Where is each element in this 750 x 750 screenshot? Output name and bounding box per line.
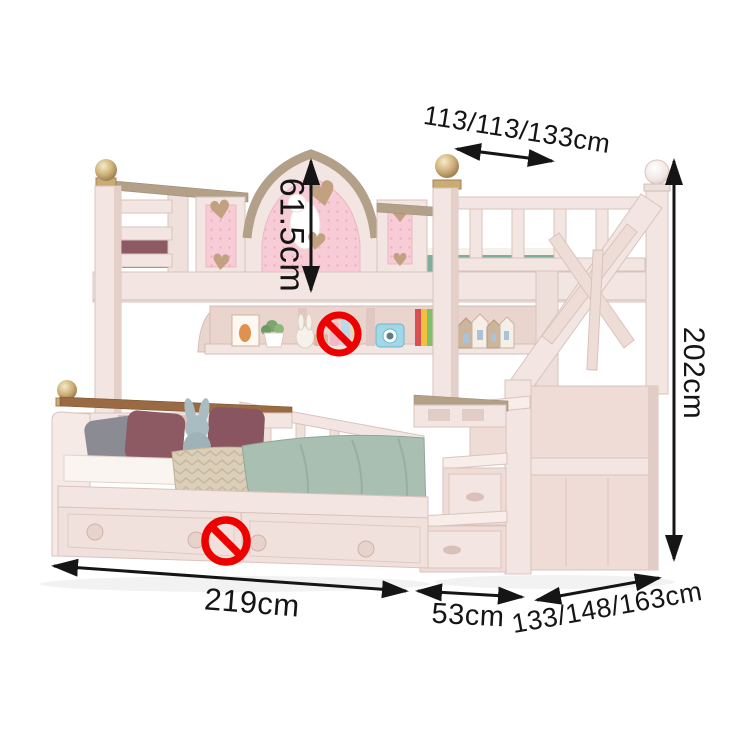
picture-frame [232, 315, 259, 346]
drawer-slot-handle [443, 546, 461, 555]
heart-panel-right: ♥ ♥ [377, 200, 433, 276]
upper-bunk: ♥ ♥ ♥ ♥ ♥ ♥ [56, 152, 648, 406]
dimension-label-headboard-height: 61.5cm [272, 178, 311, 293]
bunk-frame-band [93, 272, 648, 302]
floor-shadow [40, 575, 675, 592]
arrow-top-bunk-width [457, 149, 552, 161]
dimension-label-stair-depth: 53cm [431, 598, 506, 635]
drawer-round-handle [250, 535, 266, 551]
drawer-round-handle [87, 524, 103, 540]
toy-camera [376, 324, 404, 347]
white-finial [644, 160, 670, 191]
stair-drawer [426, 531, 501, 568]
product-dimension-image: ♥ ♥ ♥ ♥ ♥ ♥ [0, 0, 750, 750]
gold-finial [433, 154, 461, 189]
drawer-round-handle [358, 541, 374, 557]
stair-side-panel [528, 386, 658, 570]
arrow-stair-depth [418, 591, 522, 597]
heart-panel-left: ♥ ♥ [196, 195, 245, 277]
drawer-slot-handle [466, 493, 484, 502]
gold-finial [95, 159, 117, 186]
heart-icon: ♥ [392, 250, 408, 271]
lower-bed [52, 397, 428, 568]
bunk-bed-illustration: ♥ ♥ ♥ ♥ ♥ ♥ [0, 0, 750, 750]
wall-shelf [198, 306, 545, 354]
dimension-label-overall-height: 202cm [676, 327, 710, 420]
dimension-label-bed-length: 219cm [203, 581, 301, 624]
heart-icon: ♥ [207, 195, 234, 228]
